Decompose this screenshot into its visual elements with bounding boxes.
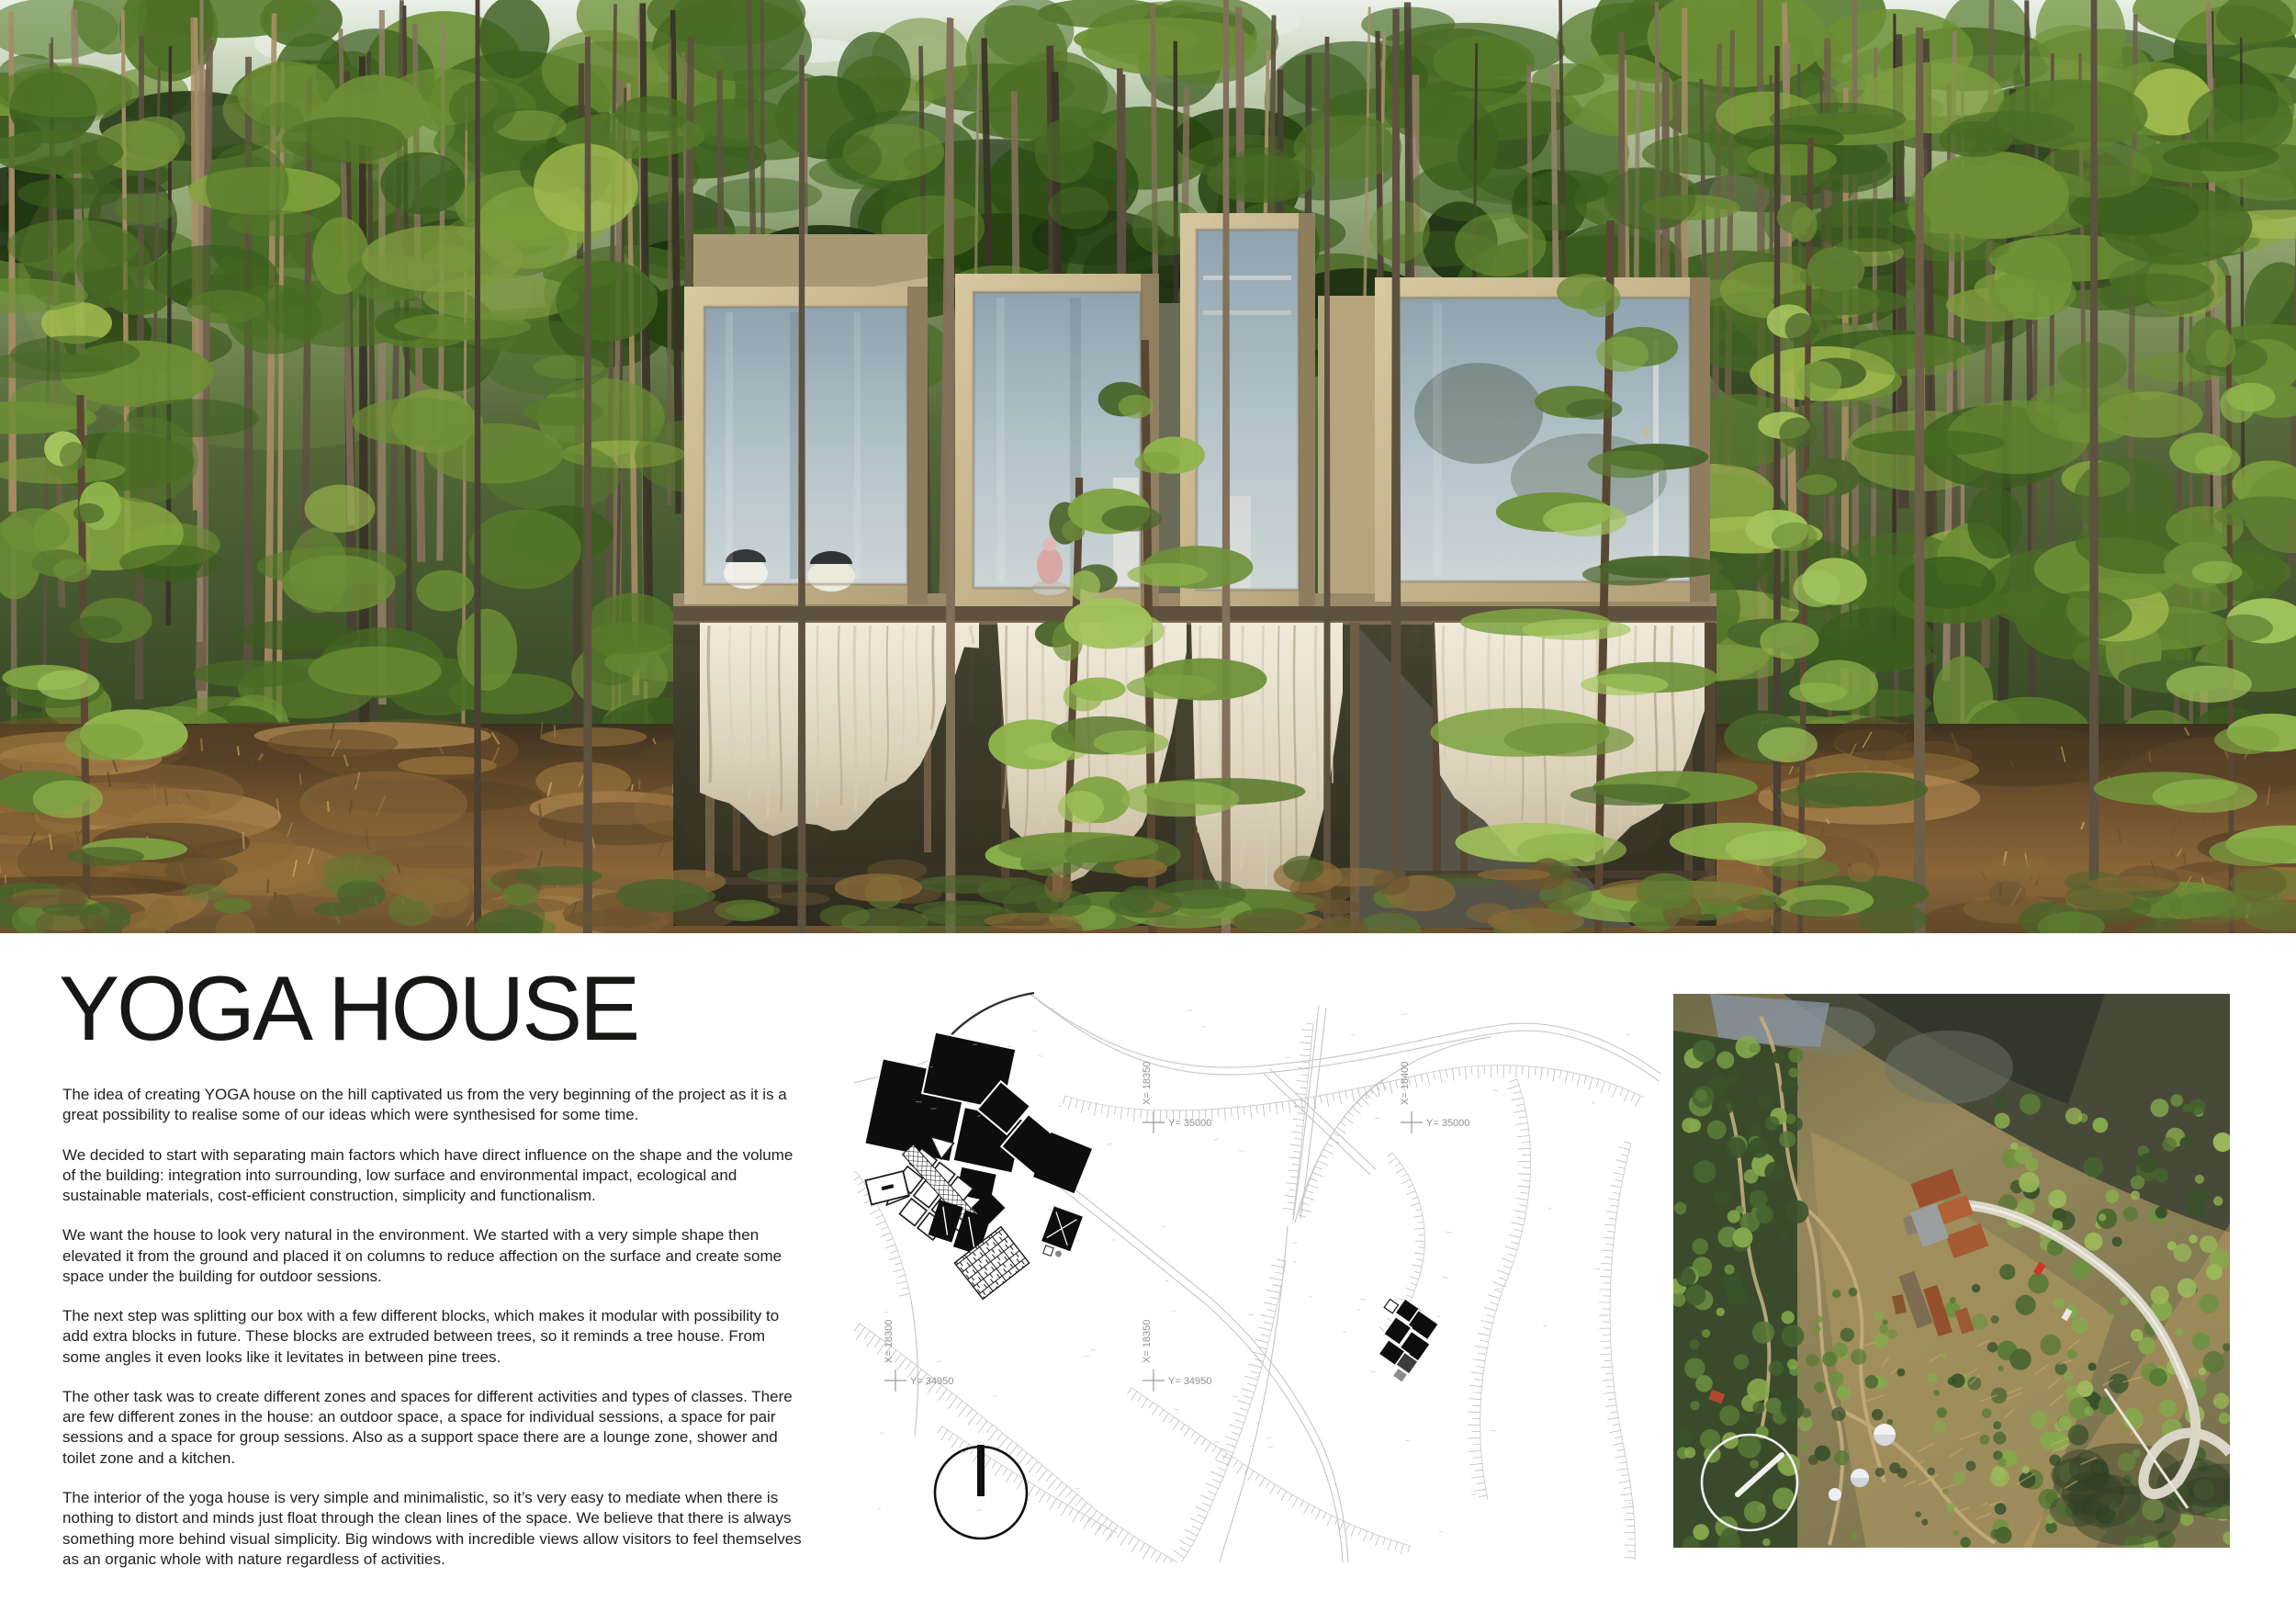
page-title: YOGA HOUSE: [59, 963, 637, 1054]
svg-text:Y= 35000: Y= 35000: [1426, 1118, 1469, 1129]
description-paragraph: The next step was splitting our box with…: [62, 1306, 803, 1368]
svg-text:X= 18350: X= 18350: [1142, 1062, 1153, 1105]
glass-box-2: [955, 274, 1159, 606]
presentation-board: YOGA HOUSE The idea of creating YOGA hou…: [0, 0, 2296, 1623]
project-description: The idea of creating YOGA house on the h…: [62, 1085, 803, 1589]
svg-text:X= 18350: X= 18350: [1142, 1320, 1153, 1363]
svg-text:Y= 35000: Y= 35000: [1168, 1118, 1211, 1129]
svg-text:Y= 34950: Y= 34950: [1168, 1376, 1211, 1387]
aerial-site-photo: [1673, 994, 2230, 1548]
glass-box-4: [1375, 277, 1710, 602]
description-paragraph: We decided to start with separating main…: [62, 1145, 803, 1207]
description-paragraph: The interior of the yoga house is very s…: [62, 1488, 803, 1570]
hero-render: [0, 0, 2296, 933]
svg-text:X= 18300: X= 18300: [884, 1320, 895, 1363]
glass-box-1: [684, 287, 928, 604]
site-plan-drawing: Y= 35000 X= 18350 Y= 35000 X= 18400 Y= 3…: [854, 986, 1662, 1562]
description-paragraph: We want the house to look very natural i…: [62, 1225, 803, 1287]
description-paragraph: The idea of creating YOGA house on the h…: [62, 1085, 803, 1126]
description-paragraph: The other task was to create different z…: [62, 1387, 803, 1469]
svg-text:Y= 34950: Y= 34950: [910, 1376, 953, 1387]
svg-text:X= 18400: X= 18400: [1400, 1062, 1411, 1105]
